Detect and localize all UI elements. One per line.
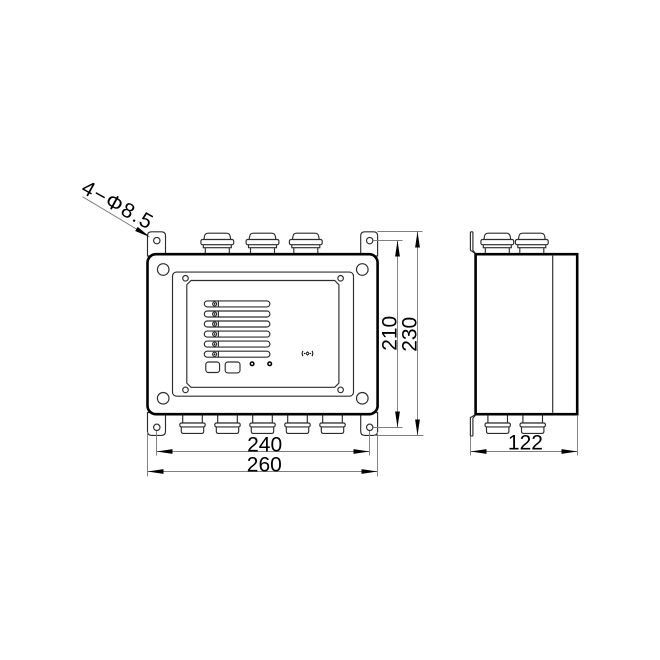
svg-text:122: 122 xyxy=(508,432,543,455)
svg-text:230: 230 xyxy=(398,317,421,352)
svg-text:260: 260 xyxy=(247,454,282,477)
